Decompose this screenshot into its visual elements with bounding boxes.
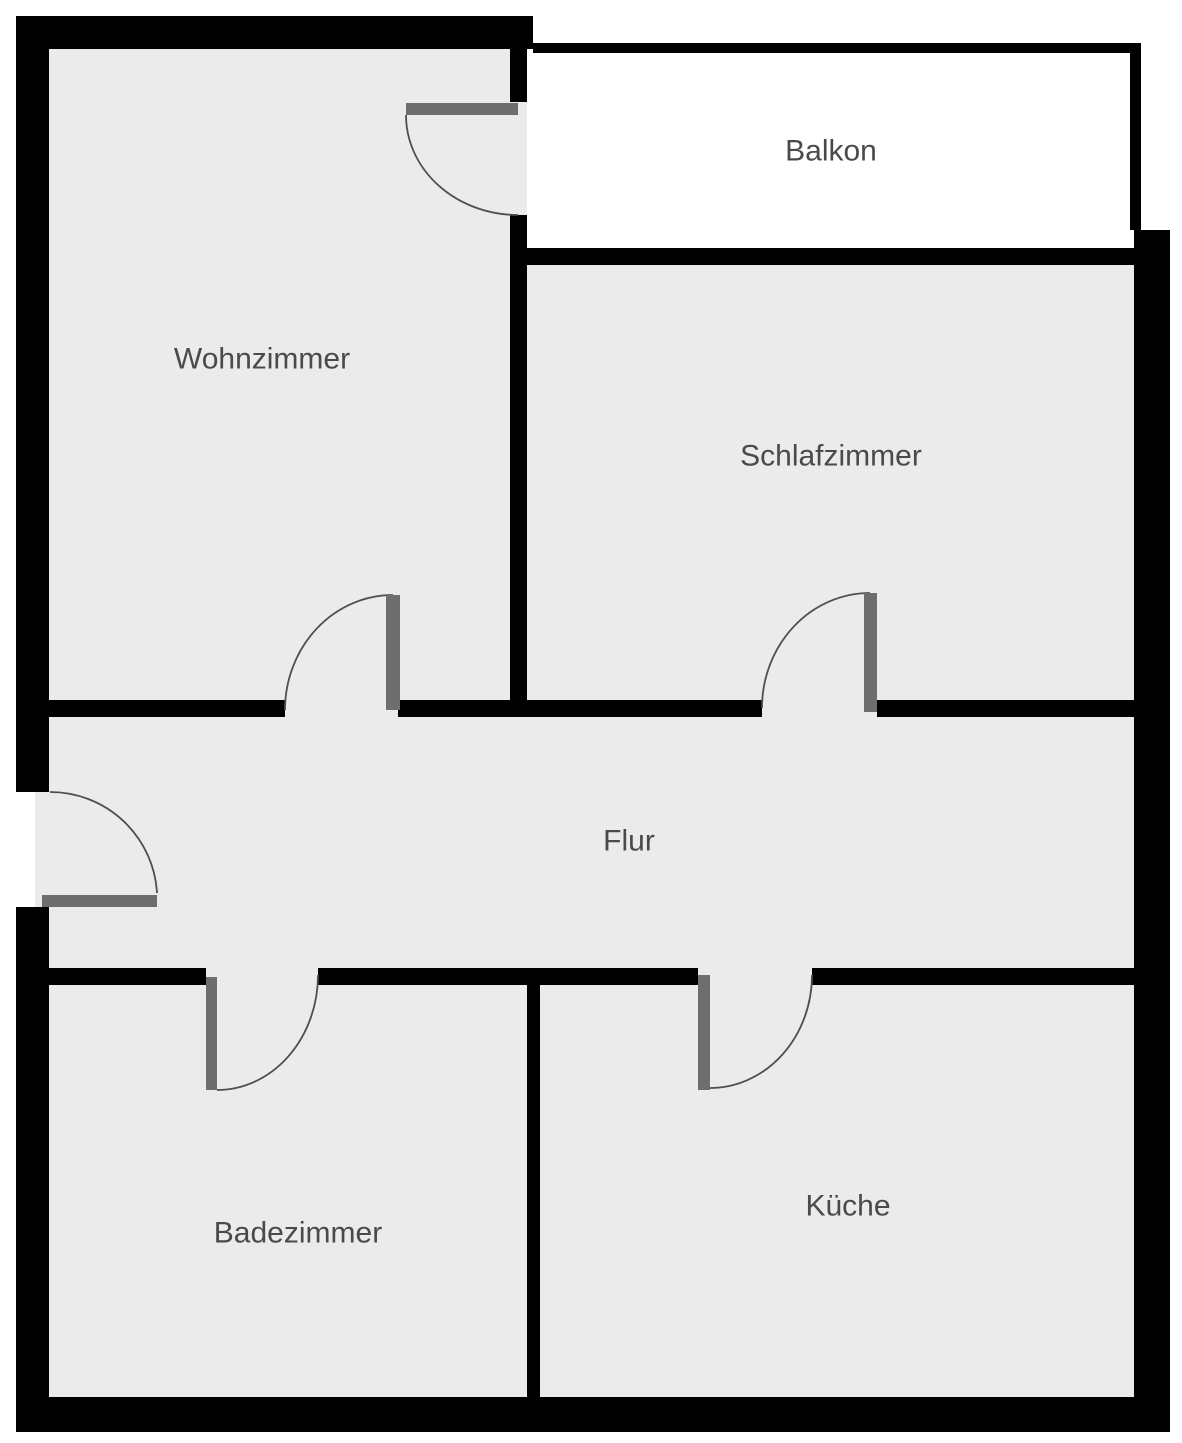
wall-bad-kueche-trenner (527, 985, 540, 1397)
wall-flur-sued-west (49, 968, 206, 985)
wall-outer-right (1134, 230, 1170, 1432)
floorplan-svg: WohnzimmerBalkonSchlafzimmerFlurBadezimm… (0, 0, 1182, 1443)
balkon-tuer-leaf (406, 103, 518, 115)
opening-badezimmer-tuer (206, 968, 318, 985)
kueche-tuer-leaf (698, 975, 710, 1090)
room-balkon-label: Balkon (785, 135, 877, 168)
room-wohnzimmer-label: Wohnzimmer (174, 343, 350, 376)
opening-eingang-schwelle (35, 792, 49, 907)
wohnzimmer-tuer-leaf (386, 595, 400, 710)
wall-flur-sued-mitte (318, 968, 698, 985)
wall-flur-sued-ost (812, 968, 1134, 985)
badezimmer-tuer-leaf (206, 977, 217, 1090)
wall-flur-nord-west (49, 700, 285, 717)
wall-outer-left-upper (16, 16, 49, 792)
eingangs-tuer-leaf (42, 895, 157, 907)
wall-outer-left-lower (16, 907, 49, 1432)
wall-wohnzimmer-ost-oben (510, 43, 527, 102)
schlafzimmer-tuer-leaf (864, 593, 877, 712)
opening-schlafzimmer-tuer (762, 700, 877, 717)
room-schlafzimmer-label: Schlafzimmer (740, 440, 922, 473)
opening-balkon-tuer (510, 102, 527, 215)
wall-balkon-rail-top (533, 43, 1141, 53)
room-badezimmer-floor (49, 985, 527, 1397)
floorplan: WohnzimmerBalkonSchlafzimmerFlurBadezimm… (0, 0, 1182, 1443)
wall-wohnzimmer-ost-unten (510, 215, 527, 717)
opening-kueche-tuer (698, 968, 812, 985)
wall-outer-bottom (16, 1397, 1170, 1432)
wall-balkon-bottom (510, 248, 1134, 265)
opening-wohnzimmer-tuer (285, 700, 398, 717)
room-badezimmer-label: Badezimmer (214, 1217, 382, 1250)
wall-balkon-rail-right (1130, 43, 1141, 230)
wall-flur-nord-ost (877, 700, 1134, 717)
wall-flur-nord-mitte (398, 700, 762, 717)
wall-outer-top (16, 16, 533, 49)
room-flur-floor (49, 717, 1134, 968)
room-kueche-label: Küche (805, 1190, 890, 1223)
room-flur-label: Flur (603, 825, 655, 858)
room-schlafzimmer-floor (527, 265, 1134, 700)
